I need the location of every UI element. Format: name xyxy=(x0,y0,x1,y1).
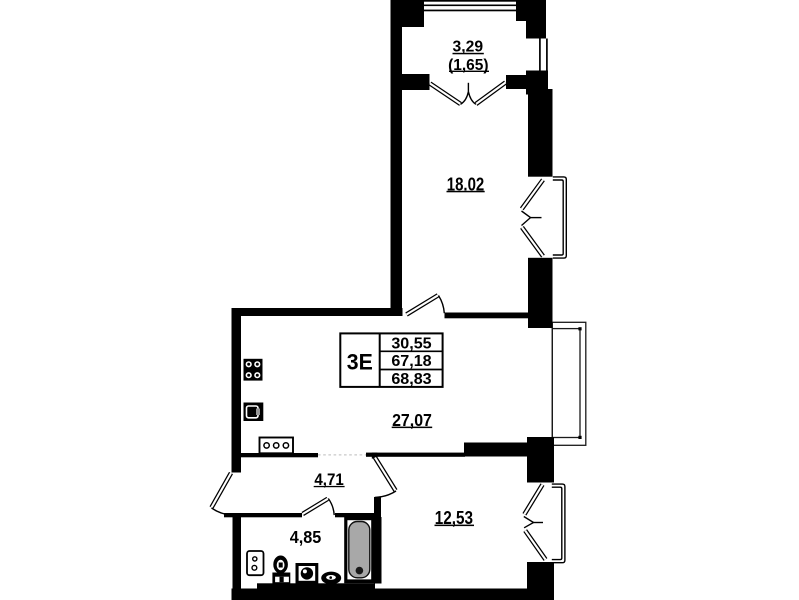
svg-text:67,18: 67,18 xyxy=(391,353,432,370)
svg-text:3Е: 3Е xyxy=(347,349,373,374)
svg-text:30,55: 30,55 xyxy=(391,336,432,353)
svg-text:4,85: 4,85 xyxy=(290,527,322,547)
svg-text:68,83: 68,83 xyxy=(391,371,431,388)
